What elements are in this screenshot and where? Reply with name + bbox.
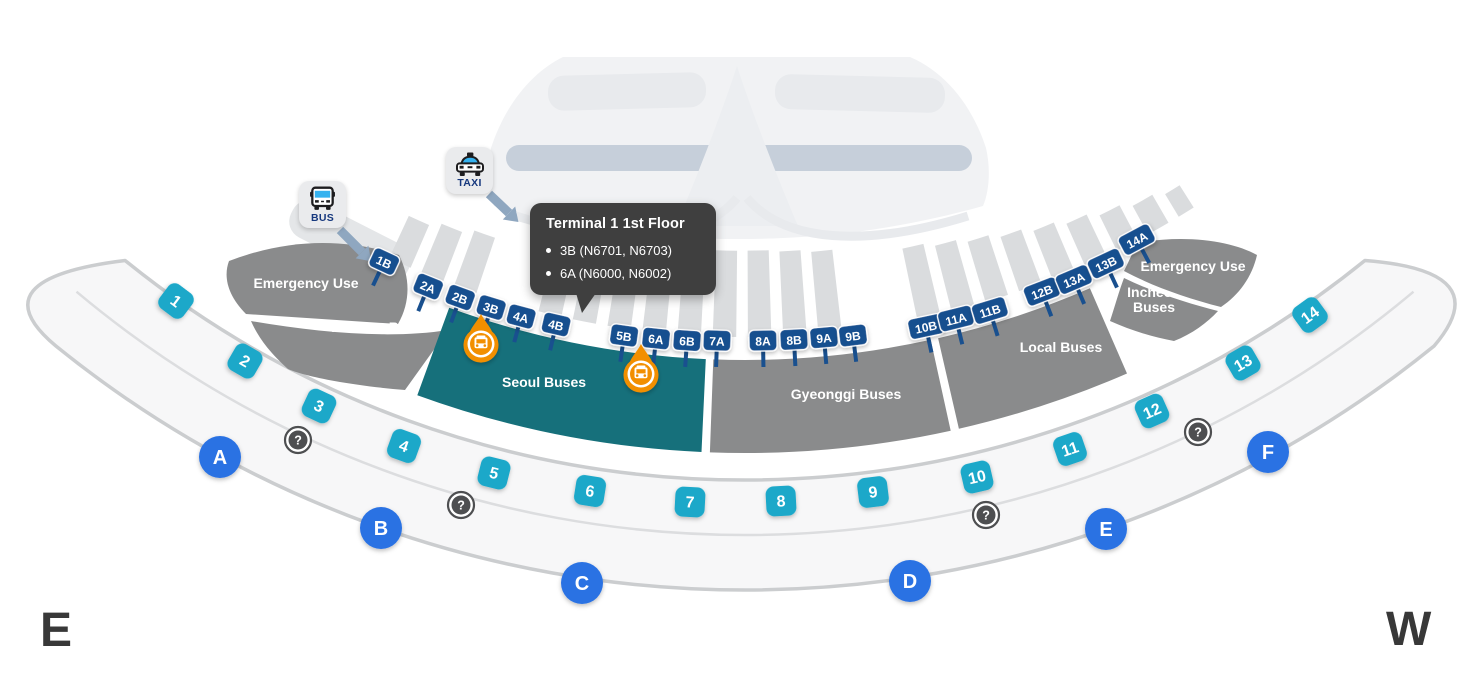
bus-glyph-icon xyxy=(635,366,648,379)
tooltip-tail xyxy=(576,293,596,313)
sign-label: 8B xyxy=(786,333,802,348)
tooltip-title: Terminal 1 1st Floor xyxy=(546,216,704,232)
door-label: C xyxy=(575,573,589,595)
gate-number-7[interactable]: 7 xyxy=(674,486,706,518)
sign-label: 6A xyxy=(648,332,665,348)
door-A[interactable]: A xyxy=(199,436,241,478)
bus-icon xyxy=(309,186,336,212)
sign-label: 5B xyxy=(615,328,632,344)
door-label: A xyxy=(213,447,227,469)
section-label-left-incheon: Incheon Buses xyxy=(331,319,431,335)
section-label-left-emergency: Emergency Use xyxy=(253,275,358,291)
question-mark-icon: ? xyxy=(1194,426,1202,440)
gate-label: 8 xyxy=(776,493,786,510)
gate-number-9[interactable]: 9 xyxy=(856,475,889,508)
section-label-seoul: Seoul Buses xyxy=(502,374,586,390)
question-mark-icon: ? xyxy=(982,509,990,523)
compass-east-label: E xyxy=(40,607,72,655)
door-label: E xyxy=(1099,519,1112,541)
gate-label: 7 xyxy=(685,494,695,511)
parking-strip xyxy=(935,240,974,311)
parking-strip xyxy=(1001,230,1042,292)
parking-strip xyxy=(1165,185,1194,217)
tooltip-item-text: 3B (N6701, N6703) xyxy=(560,243,672,258)
section-label-local: Local Buses xyxy=(1020,339,1103,355)
info-point[interactable]: ? xyxy=(1185,419,1211,445)
door-B[interactable]: B xyxy=(360,507,402,549)
tooltip-item-list: 3B (N6701, N6703) 6A (N6000, N6002) xyxy=(546,243,704,281)
gate-number-6[interactable]: 6 xyxy=(573,474,607,508)
parking-strip xyxy=(902,244,940,319)
parking-strip xyxy=(454,231,495,294)
terminal-map-canvas: Emergency UseIncheon BusesSeoul BusesGye… xyxy=(0,0,1478,688)
sign-label: 9A xyxy=(816,331,833,346)
door-label: B xyxy=(374,518,388,540)
taxi-legend-card[interactable]: TAXI xyxy=(446,147,493,194)
parking-strip xyxy=(968,235,1008,302)
taxi-icon xyxy=(455,152,485,177)
taxi-legend-label: TAXI xyxy=(457,178,481,189)
parking-strip xyxy=(421,224,462,281)
parking-strip xyxy=(748,250,772,337)
section-label-gyeonggi: Gyeonggi Buses xyxy=(791,386,902,402)
stop-info-tooltip: Terminal 1 1st Floor 3B (N6701, N6703) 6… xyxy=(530,203,716,295)
compass-west-label: W xyxy=(1386,606,1431,654)
sign-label: 6B xyxy=(679,334,696,349)
parking-strip xyxy=(779,250,806,336)
door-E[interactable]: E xyxy=(1085,508,1127,550)
tooltip-item: 6A (N6000, N6002) xyxy=(546,266,704,281)
parking-strip xyxy=(713,250,737,337)
sign-label: 7A xyxy=(709,334,725,349)
gate-number-8[interactable]: 8 xyxy=(765,485,797,517)
parking-strip xyxy=(811,250,842,334)
tooltip-item: 3B (N6701, N6703) xyxy=(546,243,704,258)
sign-post xyxy=(761,349,765,367)
info-point[interactable]: ? xyxy=(448,492,474,518)
terminal-roof-left xyxy=(548,72,707,111)
bus-glyph-icon xyxy=(475,336,488,349)
bullet-dot-icon xyxy=(546,271,551,276)
tooltip-item-text: 6A (N6000, N6002) xyxy=(560,266,671,281)
info-point[interactable]: ? xyxy=(285,427,311,453)
sign-label: 8A xyxy=(755,334,771,348)
bus-legend-card[interactable]: BUS xyxy=(299,181,346,228)
sign-label: 9B xyxy=(845,329,862,345)
bullet-dot-icon xyxy=(546,248,551,253)
door-label: D xyxy=(903,571,917,593)
door-label: F xyxy=(1262,442,1274,464)
info-point[interactable]: ? xyxy=(973,502,999,528)
door-D[interactable]: D xyxy=(889,560,931,602)
question-mark-icon: ? xyxy=(457,499,465,513)
terminal-map: Emergency UseIncheon BusesSeoul BusesGye… xyxy=(0,0,1478,688)
door-F[interactable]: F xyxy=(1247,431,1289,473)
door-C[interactable]: C xyxy=(561,562,603,604)
question-mark-icon: ? xyxy=(294,434,302,448)
section-label-right-emergency: Emergency Use xyxy=(1140,258,1245,274)
bus-legend-label: BUS xyxy=(311,213,334,224)
terminal-roof-right xyxy=(775,74,946,113)
